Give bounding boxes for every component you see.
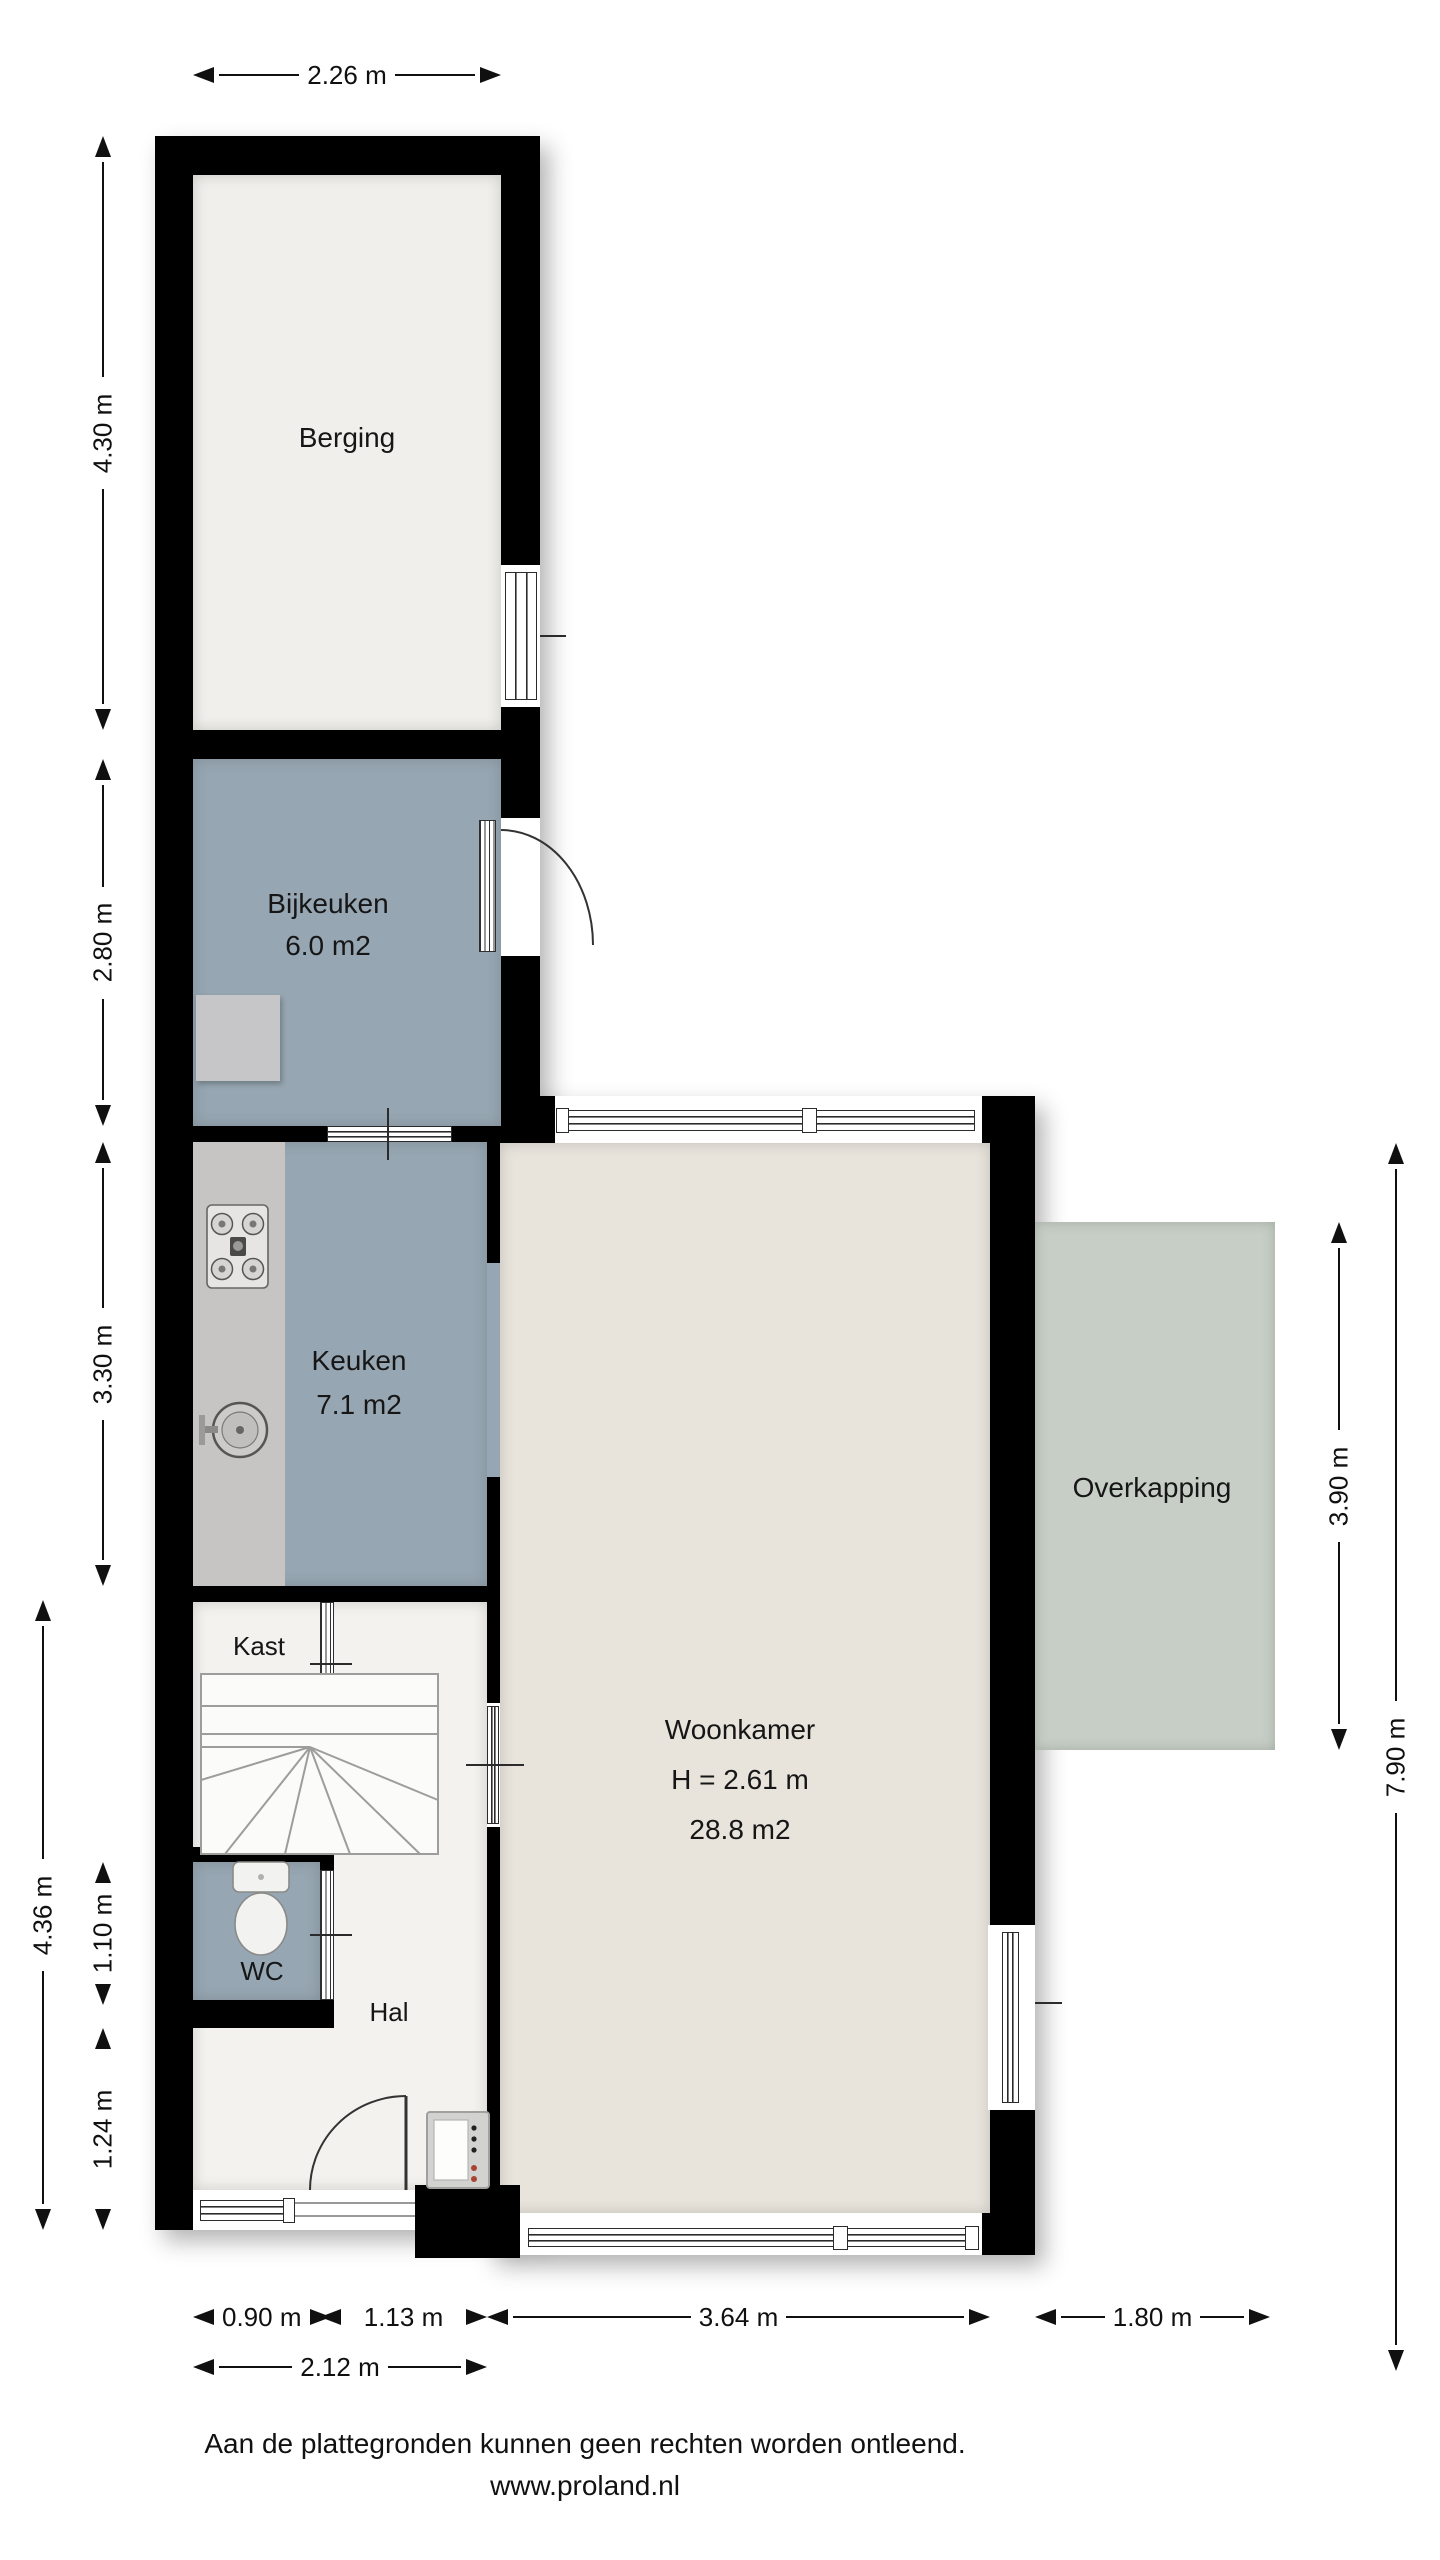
meter-box — [427, 2112, 489, 2188]
fixtures-overlay — [0, 0, 1440, 2560]
woonkamer-height: H = 2.61 m — [665, 1755, 815, 1805]
woonkamer-label: Woonkamer H = 2.61 m 28.8 m2 — [665, 1705, 815, 1855]
footer-website: www.proland.nl — [0, 2470, 1170, 2502]
stove — [207, 1205, 268, 1288]
dim-bottom-woonkamer: 3.64 m — [487, 2302, 990, 2332]
dim-bottom-entrance: 1.13 m — [320, 2302, 487, 2332]
staircase — [201, 1674, 438, 1854]
bijkeuken-label: Bijkeuken 6.0 m2 — [267, 883, 388, 967]
bijkeuken-door-arc — [501, 830, 593, 945]
hal-label: Hal — [369, 1989, 408, 2035]
front-door — [310, 2096, 406, 2190]
berging-label: Berging — [299, 415, 396, 461]
bijkeuken-area: 6.0 m2 — [267, 925, 388, 967]
kast-label: Kast — [233, 1623, 285, 1669]
toilet — [233, 1862, 289, 1955]
overkapping-label: Overkapping — [1073, 1465, 1232, 1511]
dim-bottom-overkapping: 1.80 m — [1035, 2302, 1270, 2332]
dim-right-side-total: 7.90 m — [1381, 1143, 1411, 2371]
floor-plan-page: { "rooms": { "berging": {"label": "Bergi… — [0, 0, 1440, 2560]
footer-disclaimer: Aan de plattegronden kunnen geen rechten… — [0, 2428, 1170, 2460]
dim-left-hal: 1.24 m — [88, 2028, 118, 2230]
wc-label: WC — [240, 1948, 283, 1994]
sink — [199, 1403, 267, 1457]
dim-left-hall-total: 4.36 m — [28, 1600, 58, 2230]
dim-left-berging: 4.30 m — [88, 136, 118, 730]
keuken-area: 7.1 m2 — [312, 1383, 407, 1427]
dim-top-berging-width: 2.26 m — [193, 60, 501, 90]
dim-bottom-window: 0.90 m — [193, 2302, 320, 2332]
dim-right-overkapping: 3.90 m — [1324, 1222, 1354, 1750]
dim-bottom-front-total: 2.12 m — [193, 2352, 487, 2382]
dim-left-wc: 1.10 m — [88, 1862, 118, 2005]
dim-left-bijkeuken: 2.80 m — [88, 759, 118, 1126]
keuken-label: Keuken 7.1 m2 — [312, 1339, 407, 1427]
dim-left-keuken: 3.30 m — [88, 1142, 118, 1586]
woonkamer-area: 28.8 m2 — [665, 1805, 815, 1855]
